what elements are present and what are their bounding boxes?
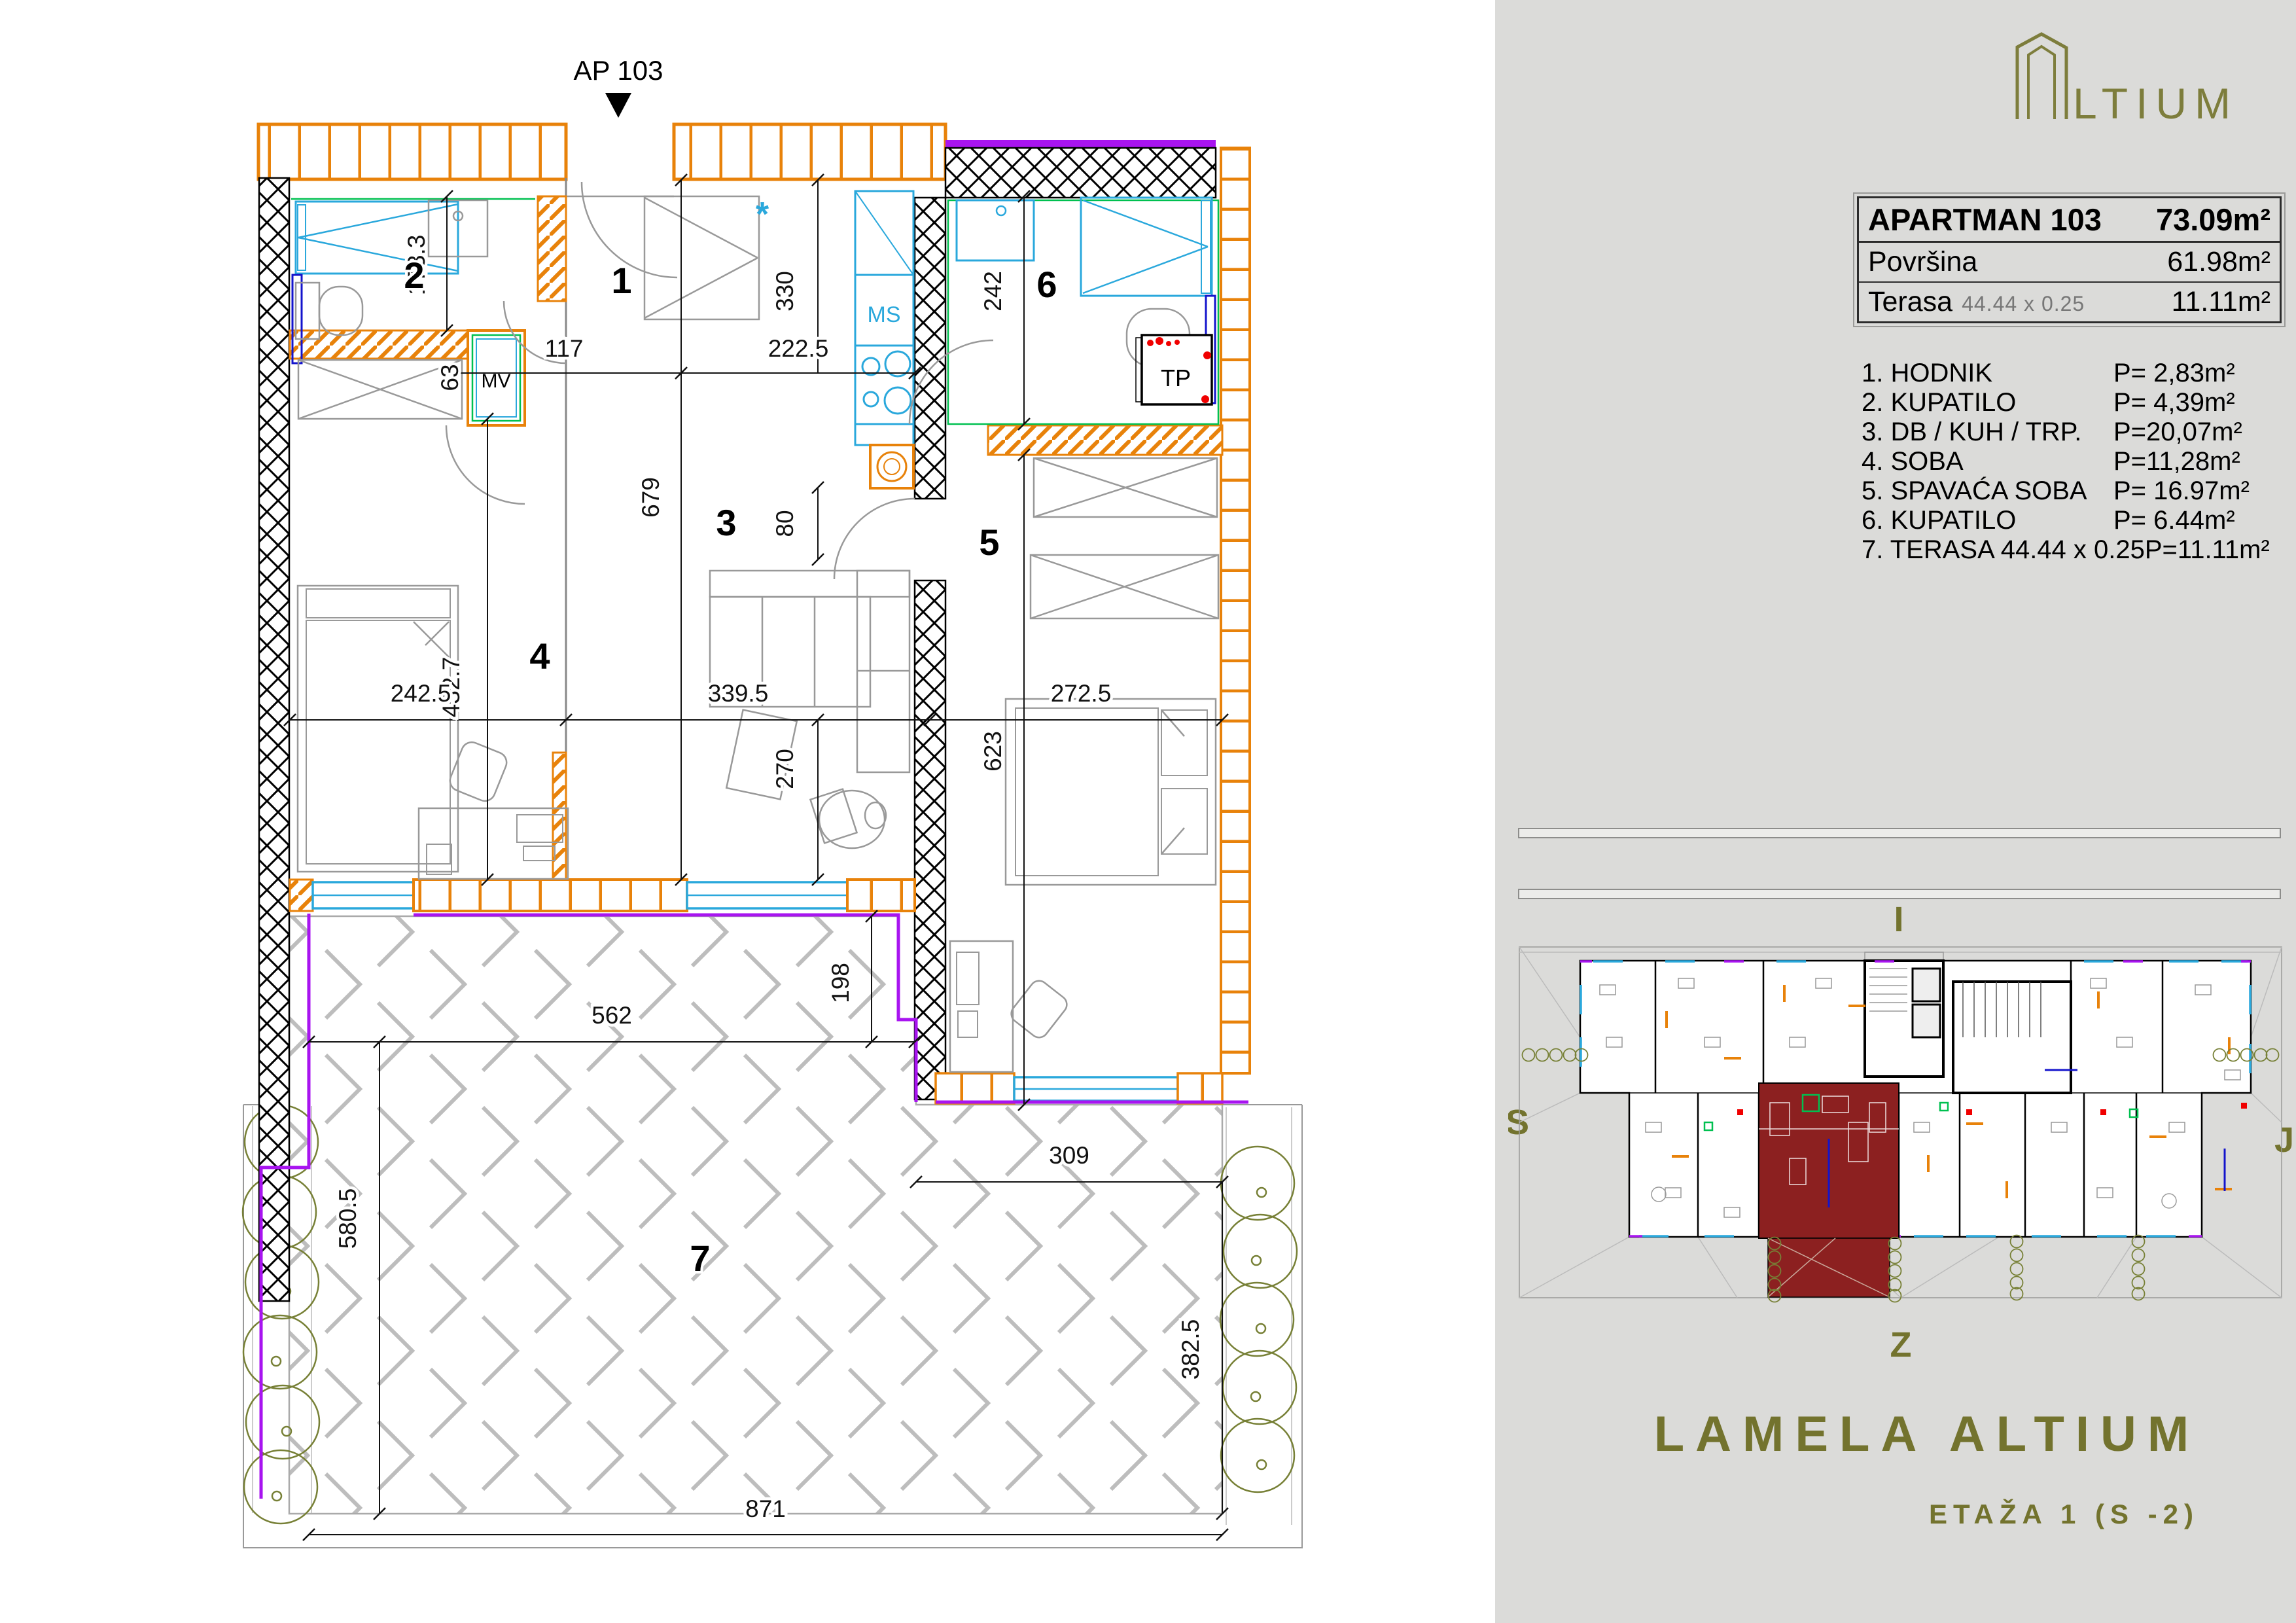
floorplan-drawing: 173.3 63 117 222.5 330 679 80 432.7 242 …: [0, 0, 1495, 1623]
info-row-area: Površina 61.98m²: [1859, 243, 2280, 283]
window-room5: [936, 1073, 1222, 1103]
dim-117: 117: [545, 335, 584, 362]
dim-272-5: 272.5: [1051, 680, 1112, 707]
dim-580-5: 580.5: [334, 1188, 361, 1249]
room-name: 7. TERASA 44.44 x 0.25: [1862, 535, 2145, 565]
compass-east: J: [2274, 1120, 2293, 1160]
divider-bar-top: [1518, 828, 2281, 838]
dim-679: 679: [637, 477, 664, 518]
finish-lines: [291, 199, 1218, 424]
brand-logo: LTIUM: [2011, 30, 2238, 122]
room-number-4: 4: [529, 635, 550, 677]
dim-222-5: 222.5: [768, 335, 829, 362]
room-list-item: 3. DB / KUH / TRP.P=20,07m²: [1862, 418, 2261, 447]
dim-80: 80: [771, 510, 798, 537]
info-row-terrace: Terasa 44.44 x 0.25 11.11m²: [1859, 283, 2280, 321]
room-area: P= 6.44m²: [2113, 506, 2261, 535]
area-label: Površina: [1868, 246, 1977, 278]
info-panel: LTIUM APARTMAN 103 73.09m² Površina 61.9…: [1495, 0, 2296, 1623]
dim-270: 270: [771, 749, 798, 789]
floorplan-sheet: 173.3 63 117 222.5 330 679 80 432.7 242 …: [0, 0, 1495, 1623]
star-symbol: *: [756, 196, 769, 234]
dim-309: 309: [1049, 1142, 1089, 1169]
room-name: 6. KUPATILO: [1862, 506, 2016, 535]
dim-198: 198: [827, 963, 854, 1003]
mv-label: MV: [482, 370, 511, 392]
room-area: P= 2,83m²: [2113, 359, 2261, 388]
fixture-labels: MV MS TP *: [482, 196, 1192, 392]
room-list-item: 4. SOBAP=11,28m²: [1862, 447, 2261, 476]
hall-wardrobe: [645, 196, 759, 319]
entrance-marker: AP 103: [573, 55, 663, 118]
terrace-value: 11.11m²: [2172, 286, 2270, 318]
terrace-slab: [243, 916, 1302, 1548]
dim-562: 562: [592, 1002, 632, 1029]
room-number-7: 7: [690, 1238, 710, 1279]
terrace-label-wrap: Terasa 44.44 x 0.25: [1868, 286, 2085, 318]
dim-242-5: 242.5: [391, 680, 451, 707]
trees-right: [1220, 1107, 1297, 1525]
room-name: 2. KUPATILO: [1862, 388, 2016, 418]
room-number-3: 3: [716, 502, 736, 543]
key-plan: I S J Z: [1508, 906, 2293, 1364]
key-plan-building: [1580, 952, 2251, 1237]
altium-logo-icon: [2011, 30, 2073, 122]
dim-871: 871: [745, 1495, 786, 1522]
apartment-info-table: APARTMAN 103 73.09m² Površina 61.98m² Te…: [1857, 196, 2282, 323]
dim-339-5: 339.5: [708, 680, 769, 707]
room-number-2: 2: [404, 255, 424, 296]
apartment-total-area: 73.09m²: [2156, 202, 2270, 238]
room-number-6: 6: [1036, 264, 1057, 305]
divider-bar-bottom: [1518, 889, 2281, 899]
apartment-title: APARTMAN 103: [1868, 202, 2102, 238]
room-area: P= 4,39m²: [2113, 388, 2261, 418]
room-list-item: 6. KUPATILOP= 6.44m²: [1862, 506, 2261, 535]
room4-furniture: [298, 360, 568, 879]
project-title: LAMELA ALTIUM: [1646, 1406, 2208, 1463]
tp-label: TP: [1161, 365, 1191, 391]
room-number-1: 1: [611, 260, 631, 301]
room-area: P=11,28m²: [2113, 447, 2261, 476]
compass-north: I: [1894, 906, 1903, 939]
room-list-item: 5. SPAVAĆA SOBAP= 16.97m²: [1862, 476, 2261, 506]
room-list: 1. HODNIKP= 2,83m² 2. KUPATILOP= 4,39m² …: [1862, 359, 2261, 565]
ms-label: MS: [868, 302, 901, 327]
kitchen: [855, 191, 913, 488]
terrace-note: 44.44 x 0.25: [1962, 292, 2085, 316]
room-name: 4. SOBA: [1862, 447, 1964, 476]
page: 173.3 63 117 222.5 330 679 80 432.7 242 …: [0, 0, 2296, 1623]
room-list-item: 1. HODNIKP= 2,83m²: [1862, 359, 2261, 388]
info-row-title: APARTMAN 103 73.09m²: [1859, 198, 2280, 243]
dim-330: 330: [771, 271, 798, 312]
area-value: 61.98m²: [2167, 246, 2270, 278]
room-list-item: 2. KUPATILOP= 4,39m²: [1862, 388, 2261, 418]
floor-subtitle: ETAŽA 1 (S -2): [1929, 1499, 2199, 1530]
room-area: P= 16.97m²: [2113, 476, 2261, 506]
room-area: P=20,07m²: [2113, 418, 2261, 447]
entrance-arrow-icon: [605, 93, 631, 118]
room-name: 5. SPAVAĆA SOBA: [1862, 476, 2087, 506]
key-plan-highlighted-apartment: [1759, 1083, 1899, 1297]
dim-382-5: 382.5: [1177, 1319, 1204, 1380]
compass-west: S: [1508, 1103, 1529, 1142]
room3-furniture: [710, 571, 910, 848]
room-name: 1. HODNIK: [1862, 359, 1992, 388]
dim-63: 63: [436, 364, 463, 391]
dim-623: 623: [980, 731, 1006, 772]
compass-south: Z: [1890, 1325, 1912, 1364]
room-list-item: 7. TERASA 44.44 x 0.25P=11.11m²: [1862, 535, 2261, 565]
windows-south: [290, 880, 915, 911]
terrace-label: Terasa: [1868, 286, 1952, 318]
interior-partitions: [290, 196, 1222, 880]
room-name: 3. DB / KUH / TRP.: [1862, 418, 2081, 447]
room-area: P=11.11m²: [2145, 535, 2270, 565]
entrance-label: AP 103: [573, 55, 663, 86]
brand-logo-text: LTIUM: [2073, 85, 2238, 122]
dim-242: 242: [980, 271, 1006, 312]
room-number-5: 5: [979, 522, 999, 563]
